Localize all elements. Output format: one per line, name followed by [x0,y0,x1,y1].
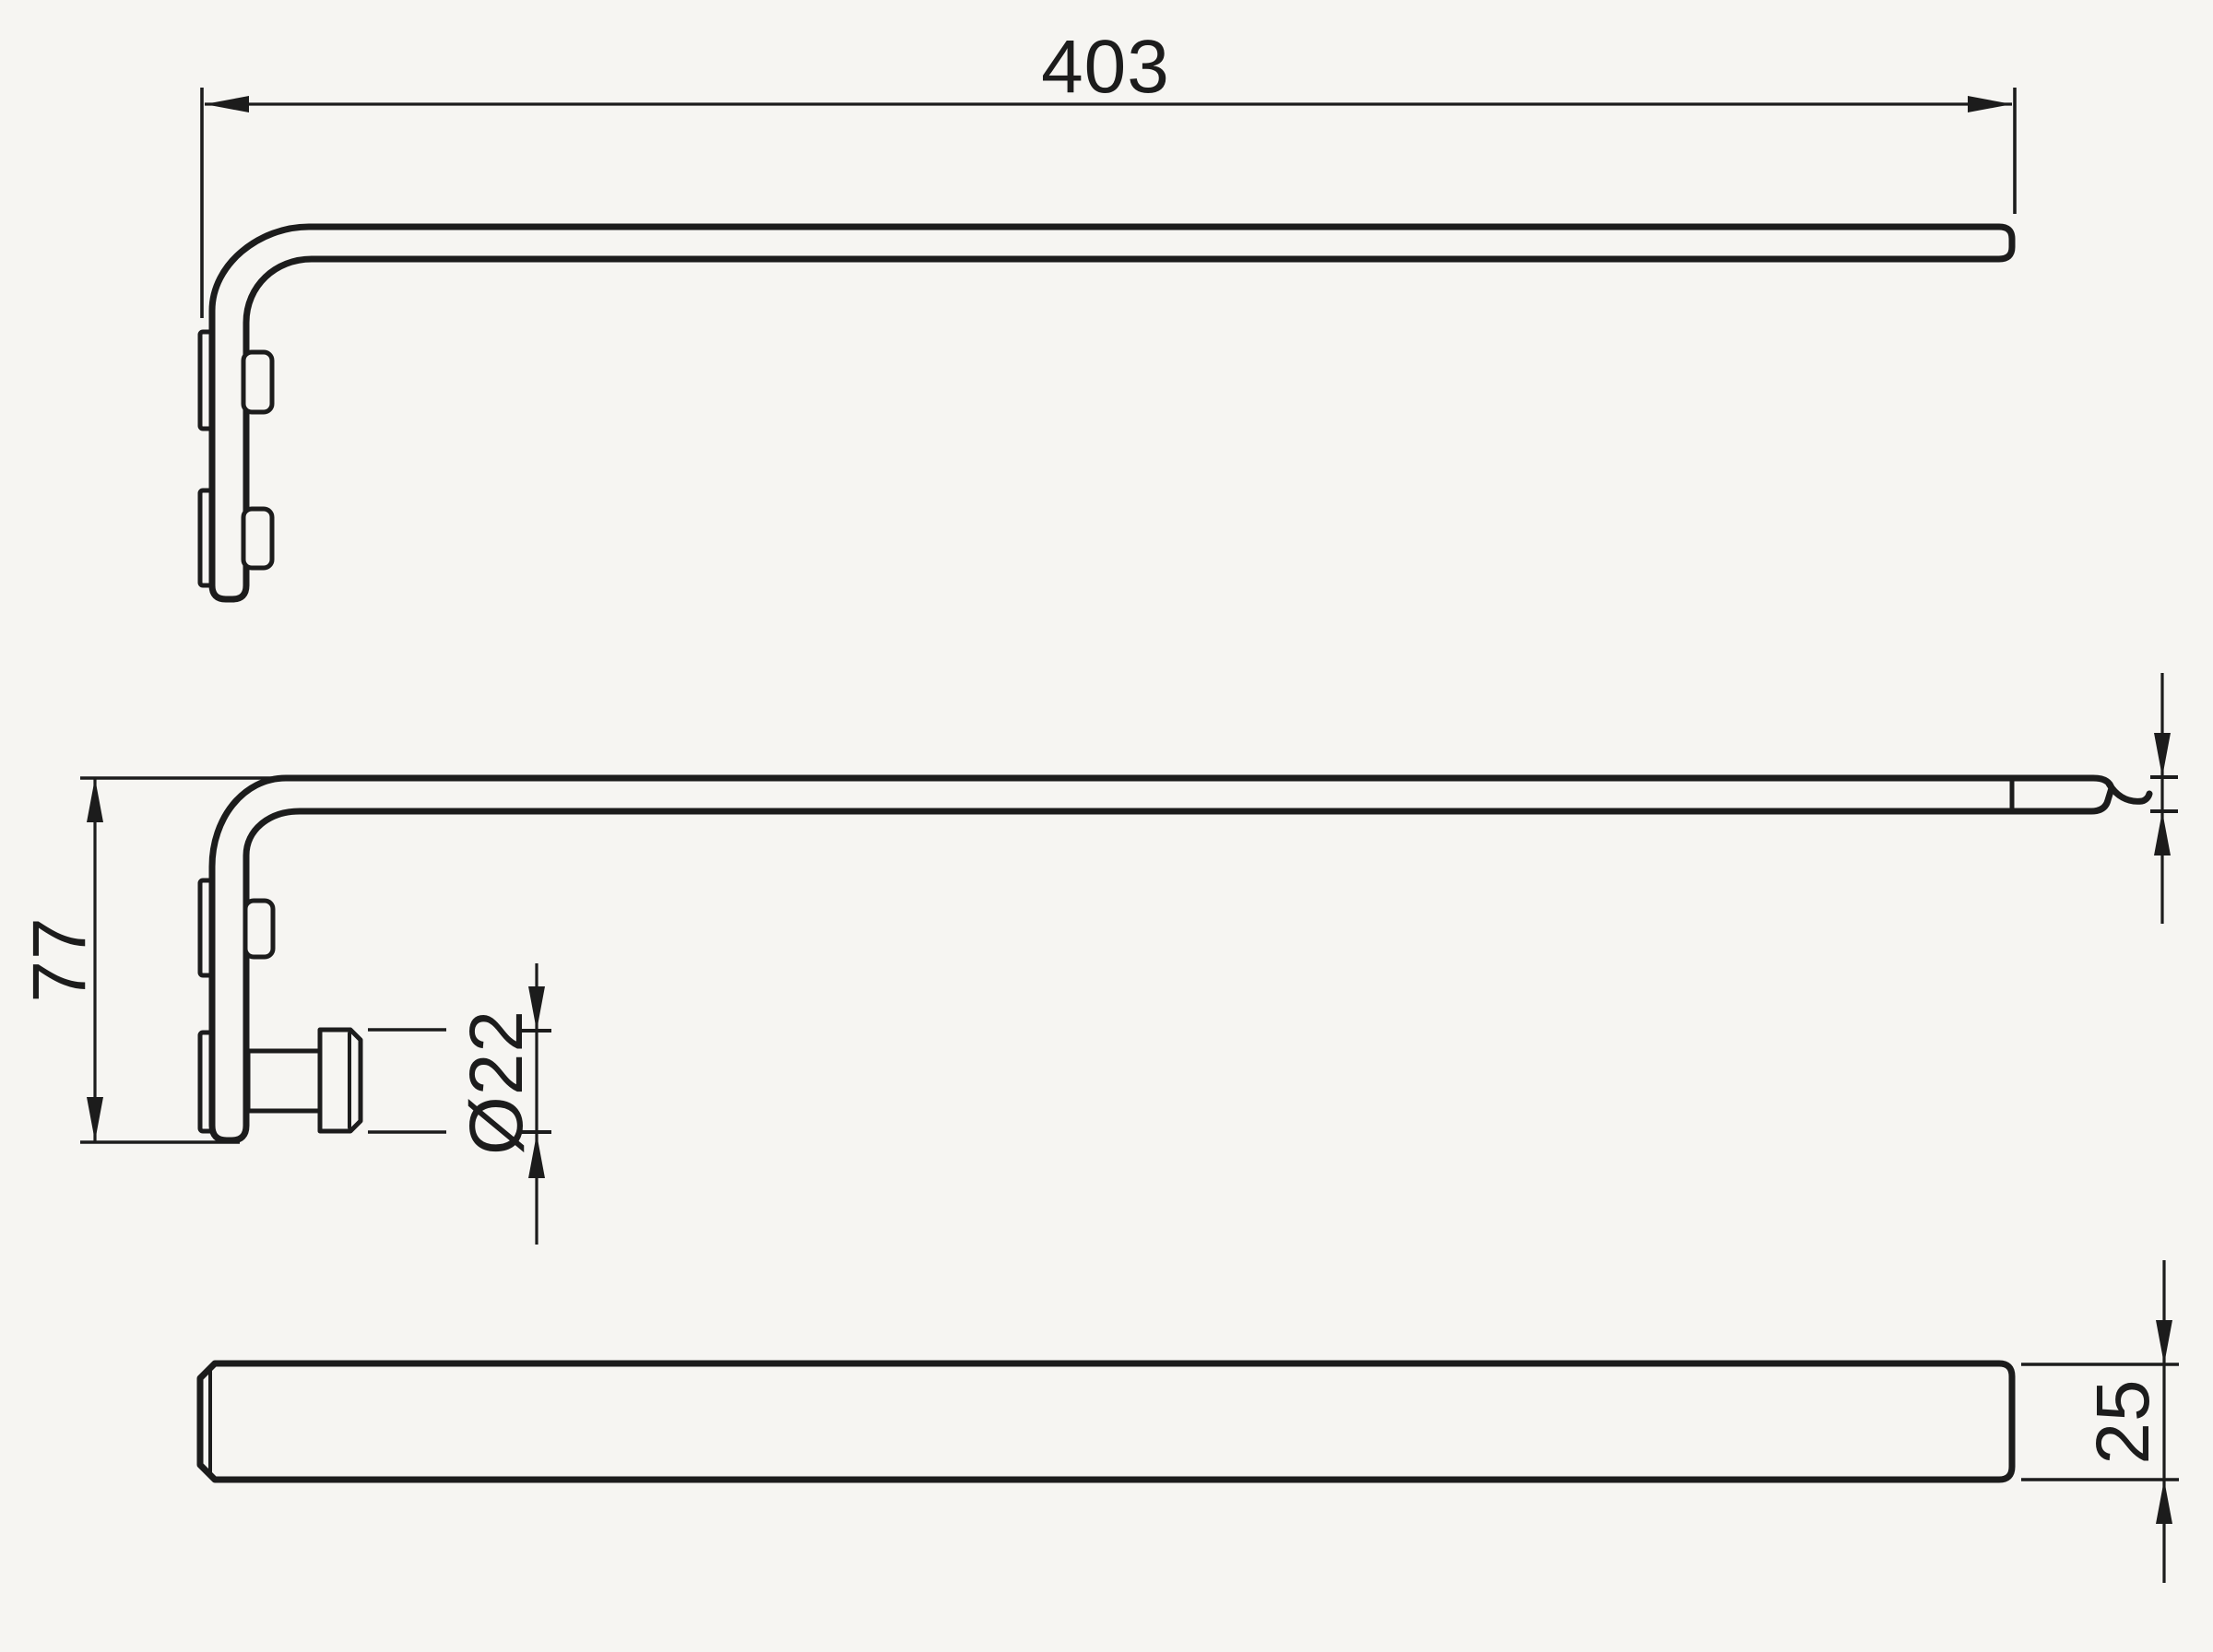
dim-width-label: 25 [2081,1378,2165,1464]
dim-height-arrow-bottom [87,1097,103,1141]
dim-width-arrow-top [2156,1320,2172,1364]
technical-drawing-sheet: 403 77 [0,0,2213,1652]
dim-length-arrow-left [205,96,249,112]
dim-bar-thickness [2150,673,2178,924]
dim-length-label: 403 [1041,25,1170,109]
dim-thickness-arrow-top [2154,733,2171,777]
bottom-view-bar-outline [200,1363,2012,1480]
front-view-bar-tip-curl [2109,784,2149,801]
dim-length-arrow-right [1968,96,2012,112]
dim-height-arrow-top [87,778,103,822]
dim-thickness-arrow-bottom [2154,811,2171,855]
top-view-clip-lower [243,509,272,568]
front-view-clip [245,901,273,957]
dim-hook-diameter: Ø22 [368,963,551,1245]
dim-length: 403 [202,25,2015,318]
top-view-clip-upper [243,352,272,412]
dim-width-arrow-bottom [2156,1480,2172,1524]
dim-height-label: 77 [18,916,101,1002]
dim-hook-label: Ø22 [455,1009,538,1155]
hook-head [320,1030,361,1131]
dim-bar-width: 25 [2021,1260,2179,1583]
hook-stem [248,1051,320,1111]
drawing-canvas: 403 77 [0,0,2213,1652]
bottom-view [200,1363,2012,1480]
top-view-bar-outline [212,227,2012,599]
top-view [200,227,2012,599]
